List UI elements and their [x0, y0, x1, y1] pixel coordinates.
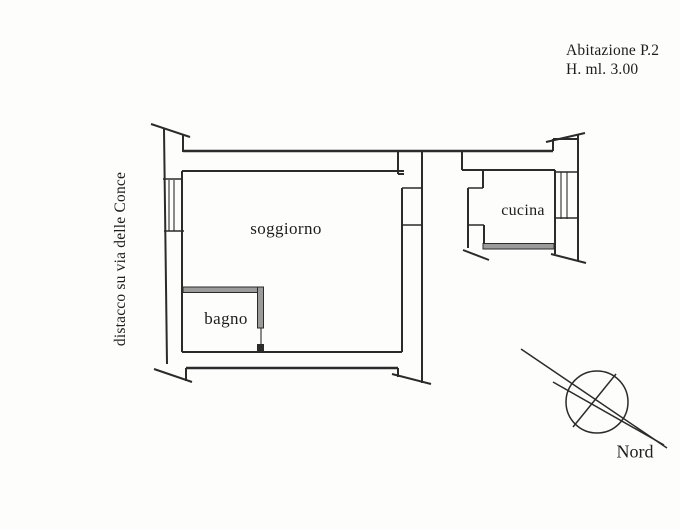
wall-segment	[164, 129, 167, 364]
left-wall	[151, 124, 192, 382]
wall-cut-mark	[551, 254, 586, 263]
title-line-height: H. ml. 3.00	[566, 60, 659, 79]
title-line-abitazione: Abitazione P.2	[566, 41, 659, 60]
wall-cut-mark	[463, 250, 489, 260]
room-label-bagno: bagno	[204, 309, 248, 329]
cucina-walls	[483, 134, 586, 263]
wall-cut-mark	[151, 124, 190, 137]
window-sill-band	[483, 244, 554, 250]
door-jamb-block	[257, 344, 264, 352]
bottom-wall	[186, 368, 431, 384]
wall-cut-mark	[546, 133, 585, 142]
floor-plan-page: Abitazione P.2 H. ml. 3.00 distacco su v…	[0, 0, 680, 529]
soggiorno-walls	[182, 152, 422, 383]
plan-drawing	[0, 0, 680, 529]
room-label-cucina: cucina	[501, 202, 545, 220]
compass-needle-line	[573, 374, 616, 427]
compass-north-label: Nord	[617, 442, 654, 463]
wall-cut-mark	[392, 374, 431, 384]
partition-band	[183, 287, 263, 293]
title-block: Abitazione P.2 H. ml. 3.00	[566, 41, 659, 79]
partition-band	[258, 287, 264, 328]
compass-second-line	[553, 382, 664, 445]
north-compass	[521, 349, 667, 448]
boundary-note-label: distacco su via delle Conce	[112, 172, 130, 346]
room-label-soggiorno: soggiorno	[250, 219, 322, 239]
top-wall	[183, 133, 585, 151]
